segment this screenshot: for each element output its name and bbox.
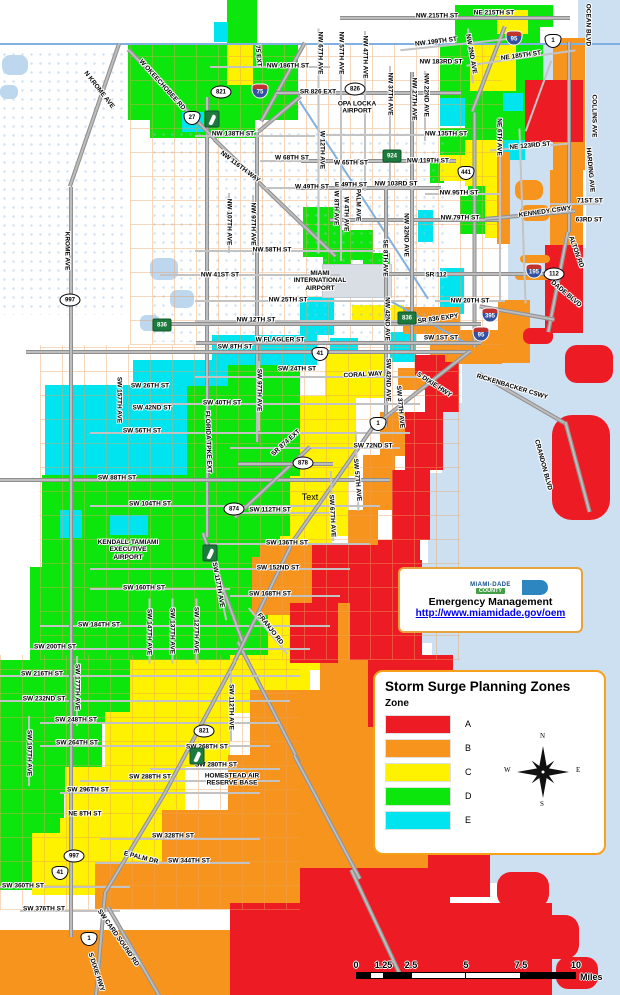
state-route-shield: 821 xyxy=(194,725,215,738)
street-label: SW 200TH ST xyxy=(34,643,76,650)
zone-a-label: A xyxy=(465,719,471,729)
street-label: SR 112 xyxy=(425,271,446,278)
street-label: SW 104TH ST xyxy=(129,500,171,507)
scale-segment xyxy=(412,973,467,978)
street-label: NW 22ND AVE xyxy=(422,73,429,117)
street-label: NE 215TH ST xyxy=(474,9,514,16)
street-label: SW 88TH ST xyxy=(98,474,136,481)
street-label: NW 138TH ST xyxy=(212,130,254,137)
zone-patch xyxy=(130,660,230,712)
miami-dade-d-icon xyxy=(522,580,548,595)
street-label: PALM AVE xyxy=(354,189,361,221)
oem-link[interactable]: http://www.miamidade.gov/oem xyxy=(416,608,566,619)
zone-patch xyxy=(0,830,32,890)
street-label: SW 127TH AVE xyxy=(192,607,199,653)
street-label: Text xyxy=(302,492,319,502)
zone-patch xyxy=(363,455,395,510)
zone-patch xyxy=(110,515,148,535)
turnpike-shield xyxy=(190,748,205,765)
scale-unit: Miles xyxy=(580,972,603,982)
road xyxy=(472,113,476,348)
logo-county: COUNTY xyxy=(476,588,505,594)
scale-segment xyxy=(357,973,371,978)
street-label: SW 1ST ST xyxy=(424,334,458,341)
street-label: NW 20TH ST xyxy=(451,297,490,304)
street-label: W FLAGLER ST xyxy=(256,336,305,343)
street-label: SW 264TH ST xyxy=(56,739,98,746)
lake xyxy=(0,85,18,99)
zone-patch xyxy=(418,210,433,242)
street-label: W 12TH AVE xyxy=(318,131,325,169)
compass-rose: N E S W xyxy=(500,732,586,808)
scale-tick: 2.5 xyxy=(405,960,418,970)
logo-name: MIAMI-DADE xyxy=(470,582,511,588)
street-label: W 49TH ST xyxy=(295,183,329,190)
street-label: NE 8TH ST xyxy=(68,810,101,817)
scale-bar: 01.252.557.510 Miles xyxy=(352,960,614,990)
street-label: NW 25TH ST xyxy=(269,296,308,303)
road xyxy=(195,320,405,322)
street-label: SW 232ND ST xyxy=(23,695,66,702)
street-label: NW 119TH ST xyxy=(407,157,449,164)
street-label: COLLINS AVE xyxy=(590,95,597,138)
street-label: E 49TH ST xyxy=(335,181,367,188)
street-label: SW 112TH AVE xyxy=(227,684,234,730)
street-label: NW 183RD ST xyxy=(420,58,463,65)
street-label: NW 103RD ST xyxy=(375,180,418,187)
street-label: OCEAN BLVD xyxy=(584,4,591,47)
street-label: SW 216TH ST xyxy=(21,670,63,677)
street-label: 71ST ST xyxy=(577,197,603,204)
zone-island xyxy=(565,345,613,383)
zone-patch xyxy=(300,868,450,906)
zone-patch xyxy=(405,412,443,470)
road xyxy=(195,376,430,378)
street-label: W 65TH ST xyxy=(334,159,368,166)
street-label: SW 184TH ST xyxy=(78,621,120,628)
zone-patch xyxy=(227,0,257,43)
street-label: NW 41ST ST xyxy=(201,271,239,278)
street-label: SR 826 EXT xyxy=(300,88,336,95)
street-label: SW 376TH ST xyxy=(23,905,65,912)
legend-item-e: E xyxy=(385,808,594,832)
scale-tick: 7.5 xyxy=(515,960,528,970)
street-label: NW 37TH AVE xyxy=(386,73,393,116)
street-label: NW 107TH AVE xyxy=(225,199,232,246)
place-label: MIAMI INTERNATIONAL AIRPORT xyxy=(294,270,347,292)
zone-patch xyxy=(503,93,523,111)
scale-segment xyxy=(384,973,411,978)
street-label: SW 42ND AVE xyxy=(384,358,391,401)
street-label: NW 67TH AVE xyxy=(316,32,323,75)
road xyxy=(90,568,350,570)
street-label: SW 26TH ST xyxy=(131,382,169,389)
scale-tick: 1.25 xyxy=(375,960,393,970)
zone-island xyxy=(533,915,579,959)
road xyxy=(238,462,333,466)
street-label: SW 328TH ST xyxy=(152,832,194,839)
street-label: SW 42ND ST xyxy=(132,404,171,411)
storm-surge-map: Storm Surge Planning Zones Zone A B C D … xyxy=(0,0,620,995)
state-route-shield: 821 xyxy=(211,86,232,99)
zone-island xyxy=(515,180,543,200)
street-label: SW 40TH ST xyxy=(203,399,241,406)
legend-zone-label: Zone xyxy=(385,698,594,709)
emergency-management-box: MIAMI-DADE COUNTY Emergency Management h… xyxy=(398,567,583,633)
place-label: KENDALL-TAMIAMI EXECUTIVE AIRPORT xyxy=(98,539,159,561)
street-label: RICKENBACKER CSWY xyxy=(476,373,549,402)
zone-island xyxy=(497,872,549,908)
street-label: SW 177TH AVE xyxy=(73,664,80,710)
scale-segment xyxy=(371,973,385,978)
street-label: W 68TH ST xyxy=(275,154,309,161)
place-label: HOMESTEAD AIR RESERVE BASE xyxy=(205,773,259,788)
street-label: NW 47TH AVE xyxy=(361,36,368,79)
turnpike-shield xyxy=(205,111,220,128)
scale-segment xyxy=(466,973,521,978)
street-label: SW 24TH ST xyxy=(278,365,316,372)
legend-title: Storm Surge Planning Zones xyxy=(385,679,594,694)
street-label: NW 58TH ST xyxy=(253,246,292,253)
zone-patch xyxy=(440,98,465,126)
compass-icon xyxy=(500,732,586,808)
zone-b-swatch xyxy=(385,739,451,758)
street-label: SW 56TH ST xyxy=(123,427,161,434)
street-label: SW 147TH AVE xyxy=(145,609,152,655)
street-label: SW 136TH ST xyxy=(266,539,308,546)
zone-e-swatch xyxy=(385,811,451,830)
scale-tick: 5 xyxy=(463,960,468,970)
street-label: NW 79TH ST xyxy=(441,214,480,221)
street-label: NW 215TH ST xyxy=(416,12,458,19)
place-label: OPA LOCKA AIRPORT xyxy=(338,101,376,116)
state-route-shield: 997 xyxy=(60,294,81,307)
street-label: SW 97TH AVE xyxy=(255,369,262,412)
street-label: NW 42ND AVE xyxy=(383,297,390,341)
state-route-shield: 826 xyxy=(345,83,366,96)
street-label: SW 296TH ST xyxy=(67,786,109,793)
scale-segment xyxy=(521,973,576,978)
street-label: SE 8TH AVE xyxy=(381,239,388,276)
street-label: NW 27TH AVE xyxy=(410,78,417,121)
state-route-shield: 112 xyxy=(544,268,565,281)
zone-c-swatch xyxy=(385,763,451,782)
zone-a-swatch xyxy=(385,715,451,734)
scale-segments xyxy=(356,972,576,979)
street-label: NW 186TH ST xyxy=(267,62,309,69)
zone-c-label: C xyxy=(465,767,472,777)
street-label: 63RD ST xyxy=(576,216,603,223)
scale-tick: 10 xyxy=(571,960,581,970)
street-label: SW 137TH AVE xyxy=(168,608,175,654)
zone-e-label: E xyxy=(465,815,471,825)
street-label: W 4TH AVE xyxy=(342,197,349,232)
street-label: SW 344TH ST xyxy=(168,857,210,864)
street-label: SW 360TH ST xyxy=(2,882,44,889)
street-label: SW 157TH AVE xyxy=(115,377,122,423)
lake xyxy=(170,290,194,308)
state-road-shield: 836 xyxy=(398,312,417,325)
street-label: SW 197TH AVE xyxy=(25,730,32,776)
street-label: SW 112TH ST xyxy=(249,506,291,513)
street-label: NW 32ND AVE xyxy=(402,213,409,257)
state-route-shield: 874 xyxy=(224,503,245,516)
zone-d-label: D xyxy=(465,791,472,801)
compass-s: S xyxy=(540,800,544,808)
zone-b-label: B xyxy=(465,743,471,753)
street-label: NW 57TH AVE xyxy=(337,32,344,75)
lake xyxy=(2,55,28,75)
street-label: CRANDON BLVD xyxy=(533,439,554,491)
miami-dade-logo: MIAMI-DADE COUNTY xyxy=(470,582,511,594)
street-label: NW 135TH ST xyxy=(425,130,467,137)
scale-ticks: 01.252.557.510 xyxy=(356,960,576,972)
street-label: NE 6TH AVE xyxy=(495,118,502,156)
street-label: HARDING AVE xyxy=(584,147,595,192)
street-label: W 8TH AVE xyxy=(332,191,339,226)
zone-island xyxy=(552,415,610,520)
compass-w: W xyxy=(504,766,511,774)
street-label: SW 248TH ST xyxy=(55,716,97,723)
lake xyxy=(150,258,178,280)
state-route-shield: 997 xyxy=(64,850,85,863)
state-road-shield: 924 xyxy=(383,150,402,163)
zone-patch xyxy=(392,470,430,540)
compass-e: E xyxy=(576,766,580,774)
zone-patch xyxy=(105,712,230,767)
street-label: SW 160TH ST xyxy=(123,584,165,591)
street-label: NW 95TH ST xyxy=(440,189,479,196)
street-label: NW 97TH AVE xyxy=(249,203,256,246)
turnpike-shield xyxy=(203,545,218,562)
street-label: SW 152ND ST xyxy=(257,564,300,571)
street-label: SW 72ND ST xyxy=(353,442,392,449)
street-label: NW 12TH ST xyxy=(237,316,276,323)
state-route-shield: 878 xyxy=(293,457,314,470)
street-label: SW 8TH ST xyxy=(218,343,253,350)
zone-patch xyxy=(214,22,228,42)
zone-patch xyxy=(290,603,338,663)
canal xyxy=(0,43,620,45)
zone-patch xyxy=(227,43,253,85)
street-label: KROME AVE xyxy=(63,232,70,271)
info-box-title: Emergency Management xyxy=(429,596,553,608)
scale-tick: 0 xyxy=(353,960,358,970)
street-label: SW 168TH ST xyxy=(249,590,291,597)
compass-n: N xyxy=(540,732,545,740)
state-road-shield: 836 xyxy=(153,319,172,332)
street-label: SW 288TH ST xyxy=(129,773,171,780)
road xyxy=(150,403,420,405)
zone-d-swatch xyxy=(385,787,451,806)
